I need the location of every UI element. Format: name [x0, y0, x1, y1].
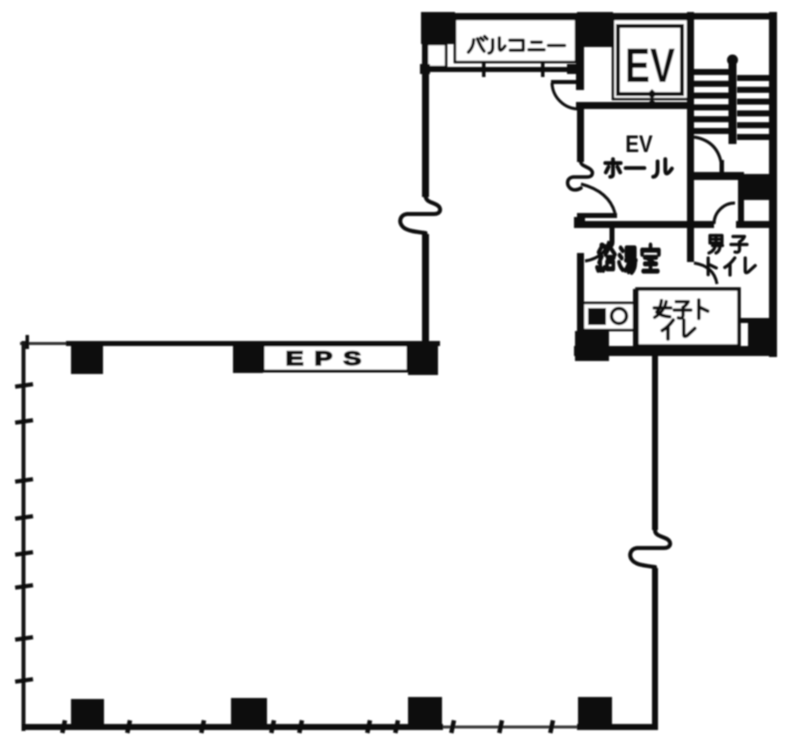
svg-text:EV: EV: [625, 130, 652, 157]
svg-text:EV: EV: [625, 40, 675, 94]
svg-text:EPS: EPS: [286, 348, 373, 370]
